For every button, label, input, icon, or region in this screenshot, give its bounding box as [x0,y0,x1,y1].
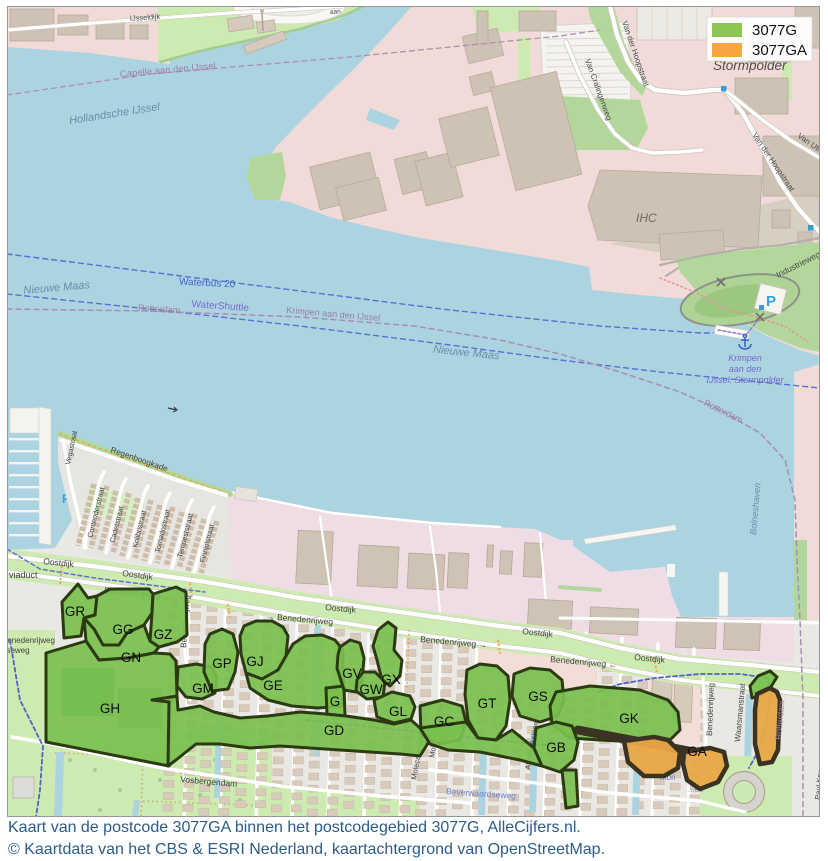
svg-text:© Kaartdata van het CBS & ESRI: © Kaartdata van het CBS & ESRI Nederland… [8,841,605,858]
svg-text:viaduct: viaduct [9,570,38,580]
svg-text:GZ: GZ [154,627,173,642]
svg-text:Kaart van de postcode 3077GA b: Kaart van de postcode 3077GA binnen het … [8,819,581,836]
svg-text:GV: GV [342,666,362,681]
svg-text:GA: GA [687,744,707,759]
svg-text:GK: GK [619,711,639,726]
svg-text:GW: GW [359,682,383,697]
svg-text:IJssel. Stormpolder: IJssel. Stormpolder [706,375,784,385]
svg-text:GT: GT [478,696,497,711]
svg-text:GG: GG [112,622,133,637]
svg-text:GR: GR [65,604,86,619]
svg-text:GJ: GJ [246,654,263,669]
svg-text:GL: GL [389,704,408,719]
svg-text:GD: GD [324,723,345,738]
svg-text:GP: GP [212,656,232,671]
svg-text:aan: aan [330,8,342,16]
svg-text:GB: GB [546,740,566,755]
svg-text:P: P [766,293,776,310]
svg-text:GM: GM [192,681,214,696]
svg-text:Benedenrijweg: Benedenrijweg [705,683,716,736]
svg-text:Krimpen: Krimpen [728,353,762,363]
svg-text:IHC: IHC [636,211,657,225]
svg-text:aan den: aan den [729,364,762,374]
svg-text:3077G: 3077G [752,22,797,39]
svg-text:GH: GH [100,701,120,716]
svg-text:GX: GX [381,672,401,687]
svg-text:3077GA: 3077GA [752,42,807,59]
svg-text:GS: GS [528,689,548,704]
svg-text:GE: GE [263,678,283,693]
svg-text:G: G [330,694,341,709]
svg-text:GN: GN [121,650,141,665]
svg-text:GC: GC [434,714,455,729]
